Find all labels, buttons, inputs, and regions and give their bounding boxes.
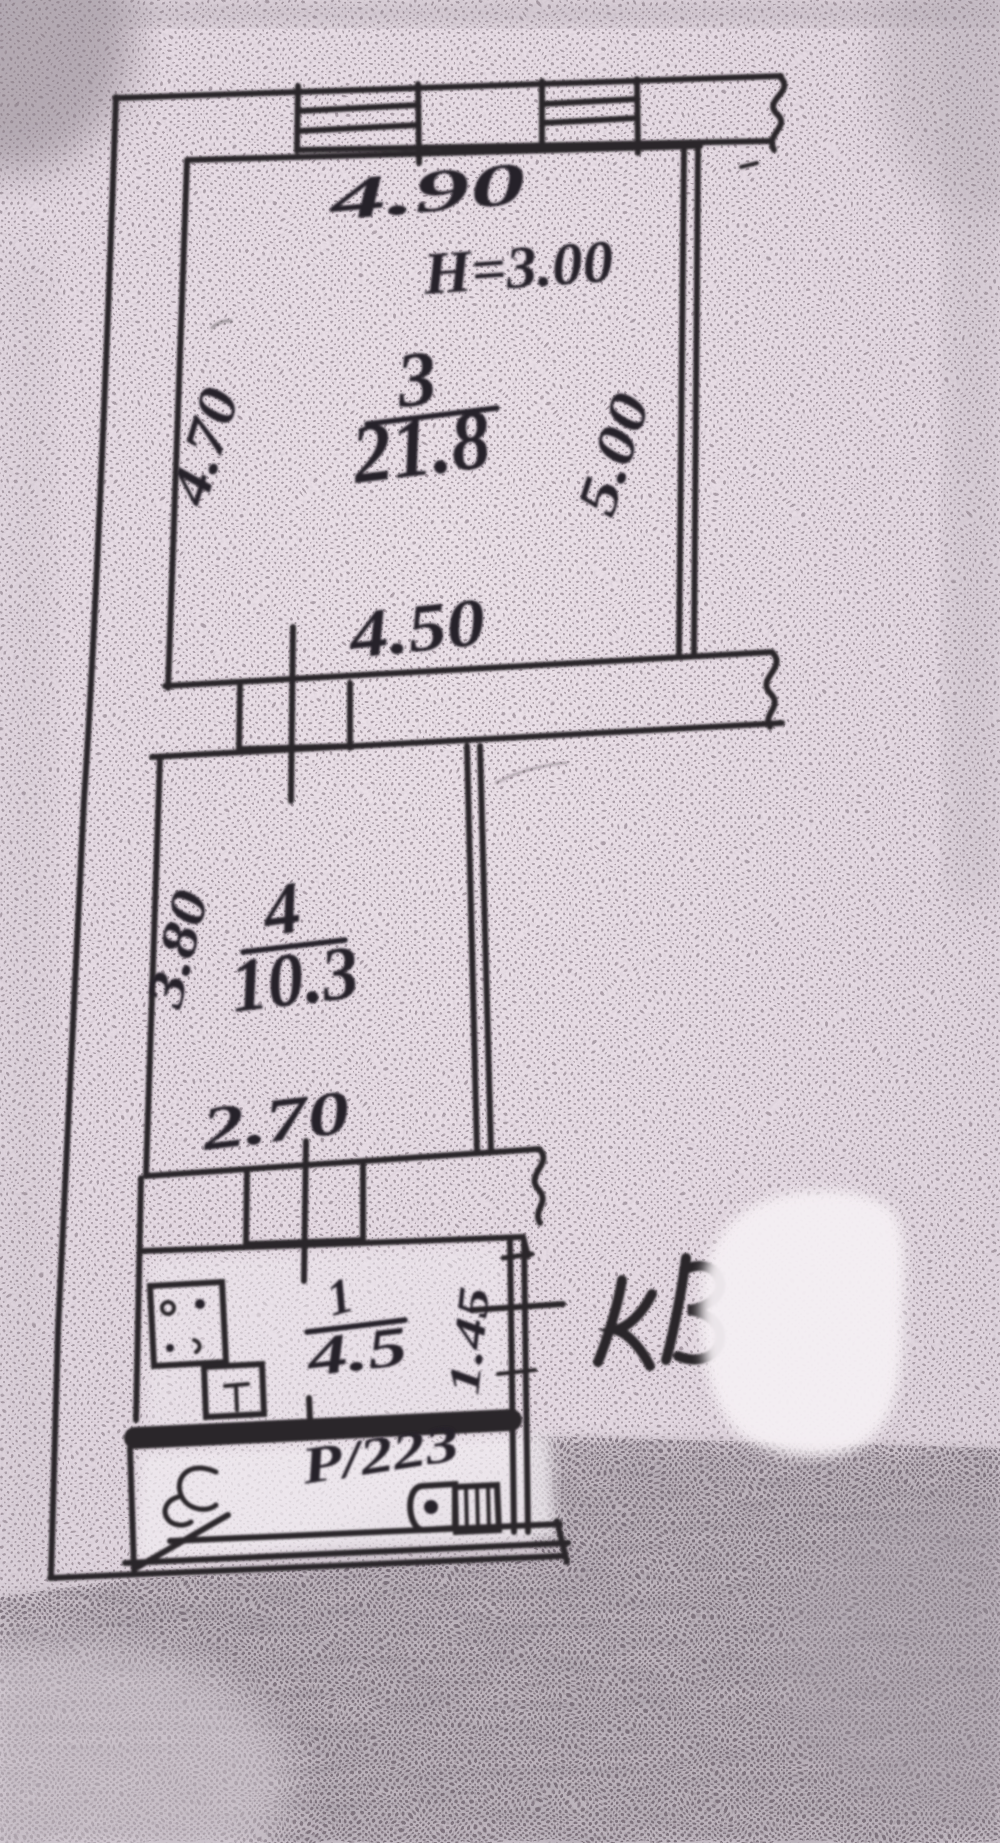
svg-text:4.5: 4.5 xyxy=(303,1315,411,1389)
svg-text:4.50: 4.50 xyxy=(343,583,488,673)
svg-text:Н=3.00: Н=3.00 xyxy=(420,228,615,307)
svg-text:10.3: 10.3 xyxy=(226,930,363,1029)
svg-text:21.8: 21.8 xyxy=(345,393,495,502)
